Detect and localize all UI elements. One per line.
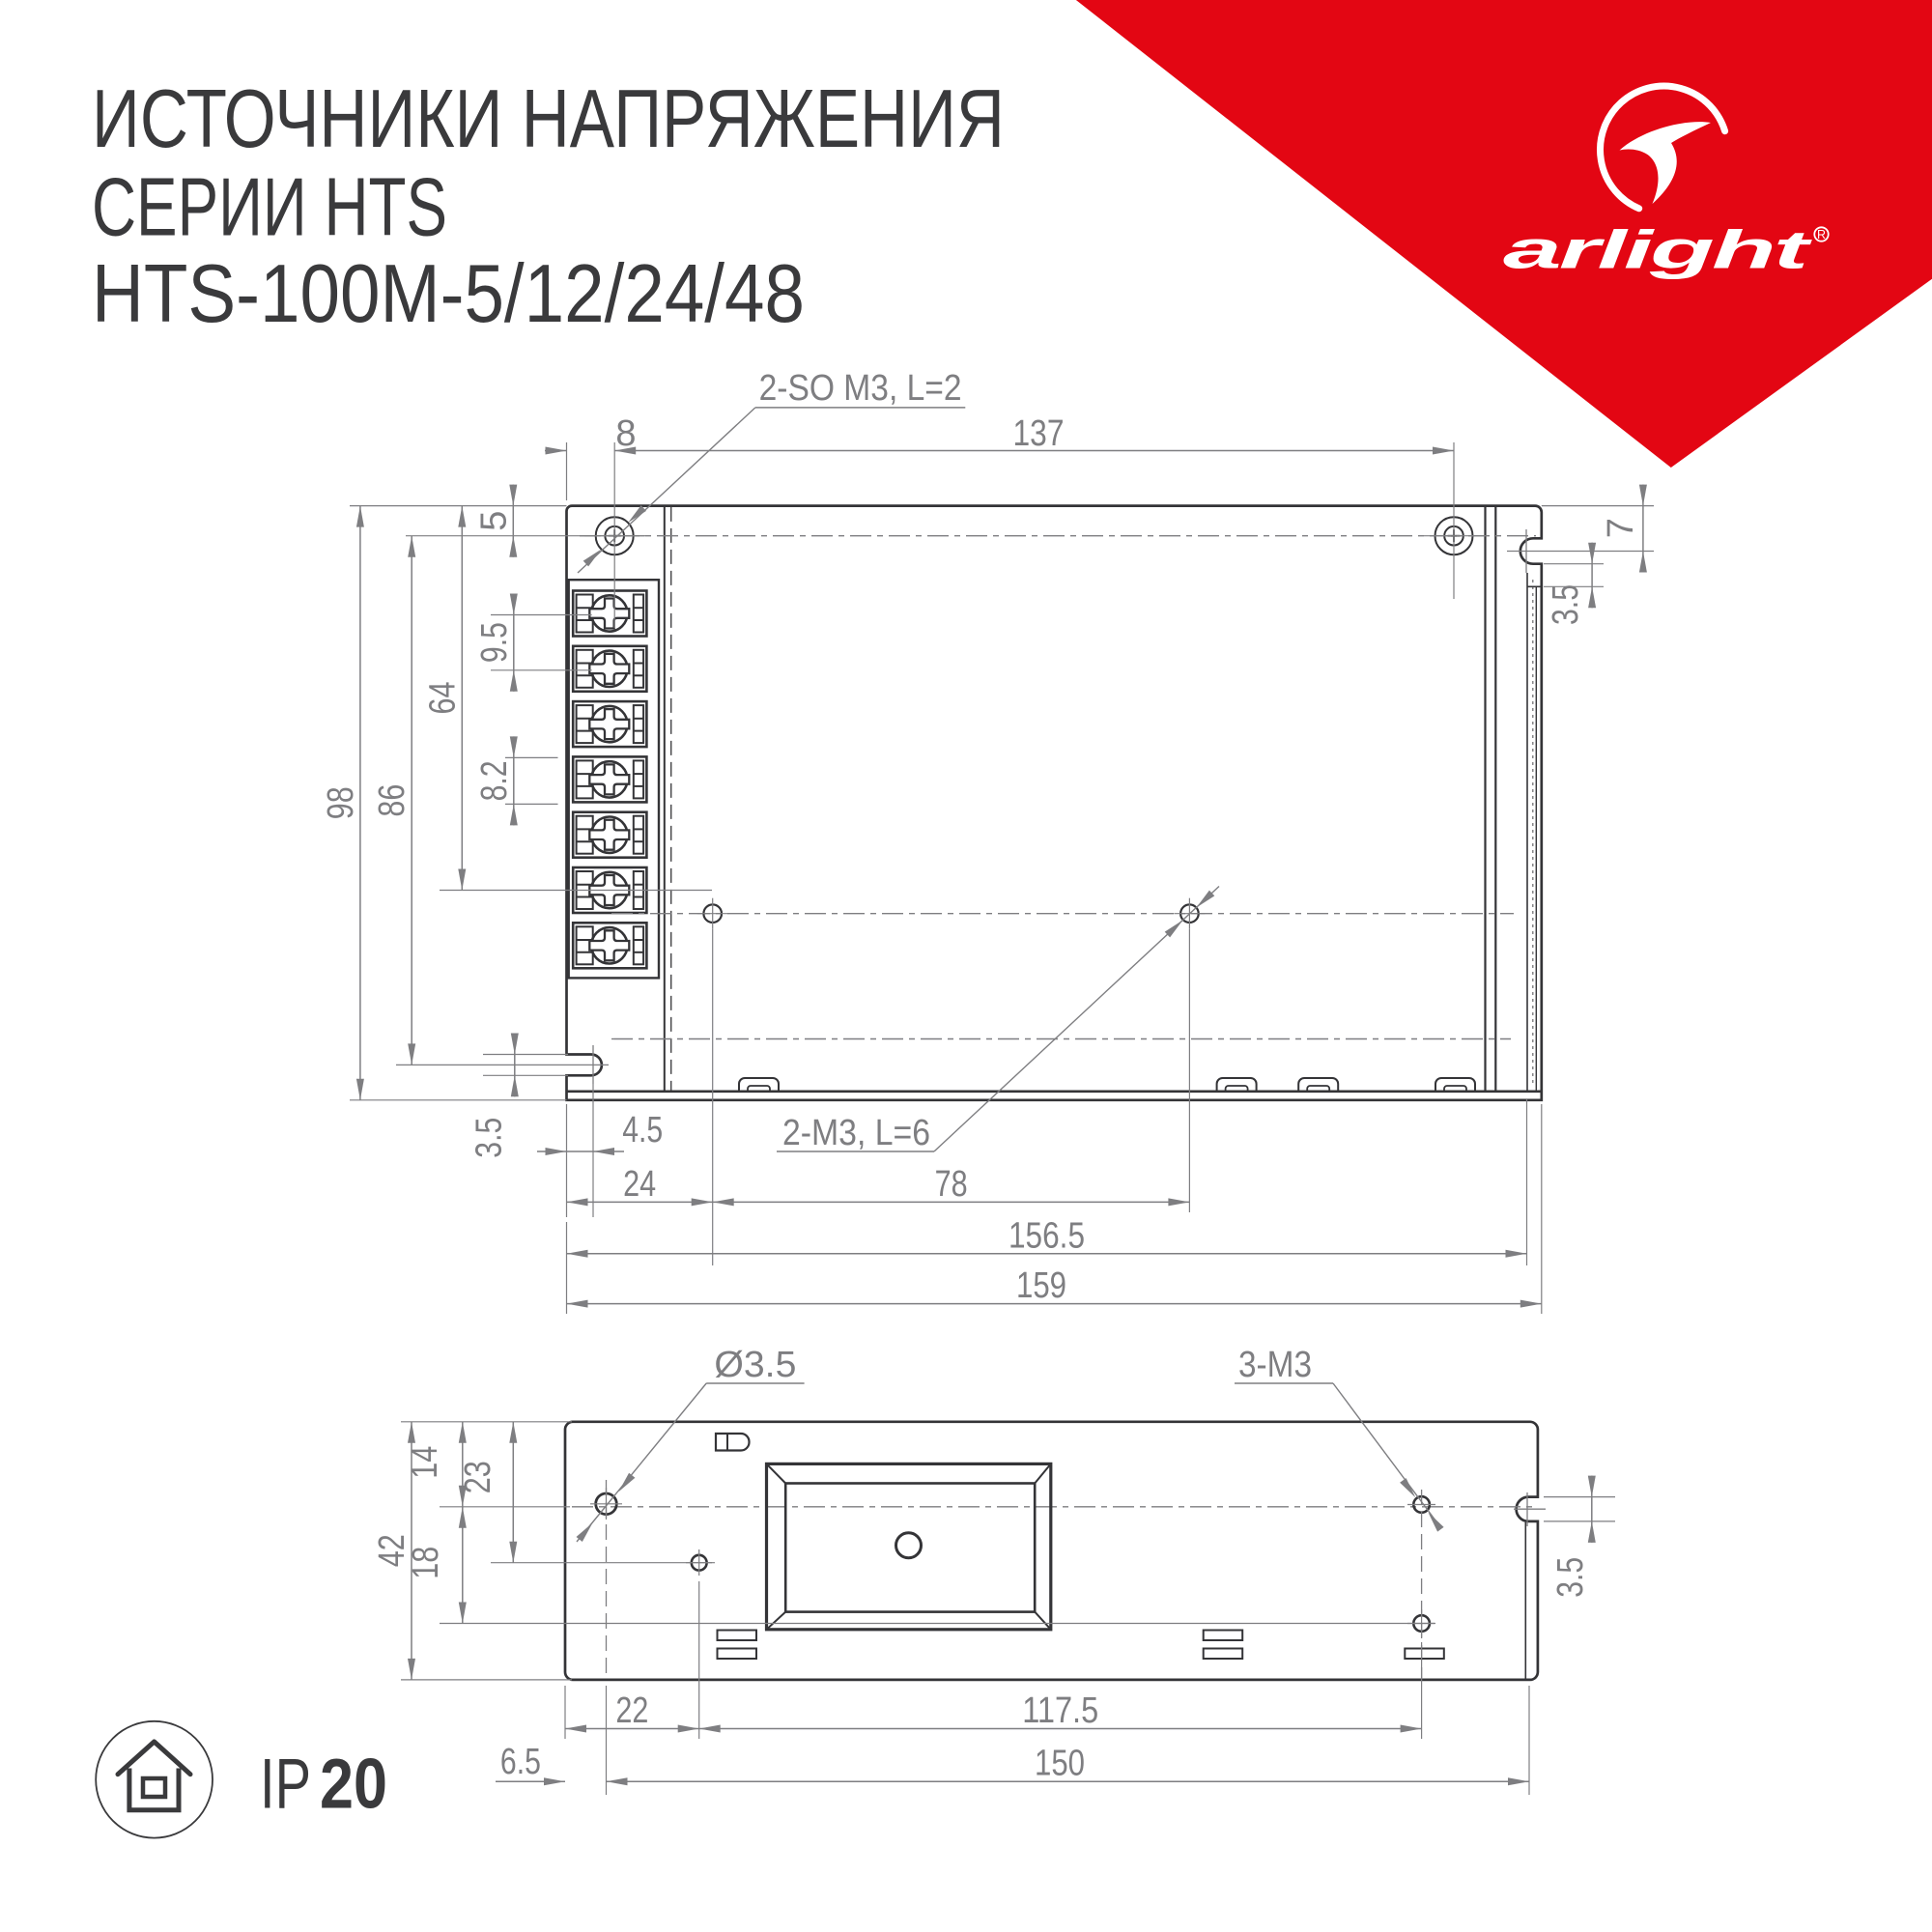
svg-text:5: 5	[473, 511, 514, 531]
svg-text:20: 20	[320, 1746, 387, 1824]
svg-text:8.2: 8.2	[474, 760, 515, 801]
svg-text:9.5: 9.5	[474, 622, 515, 663]
svg-text:150: 150	[1035, 1744, 1085, 1784]
svg-text:24: 24	[623, 1164, 656, 1205]
svg-text:4.5: 4.5	[622, 1110, 663, 1151]
svg-text:3.5: 3.5	[469, 1118, 509, 1158]
svg-text:64: 64	[422, 682, 463, 715]
svg-text:159: 159	[1016, 1265, 1066, 1306]
svg-text:arlight: arlight	[1503, 219, 1812, 280]
svg-text:8: 8	[615, 413, 636, 454]
svg-text:Ø3.5: Ø3.5	[714, 1345, 796, 1385]
svg-text:98: 98	[321, 786, 361, 819]
svg-text:22: 22	[615, 1690, 648, 1731]
svg-text:23: 23	[458, 1461, 498, 1493]
svg-text:7: 7	[1601, 518, 1641, 538]
svg-text:R: R	[1817, 228, 1826, 241]
svg-text:117.5: 117.5	[1022, 1690, 1098, 1731]
svg-text:3-M3: 3-M3	[1238, 1345, 1312, 1385]
svg-text:2-M3, L=6: 2-M3, L=6	[782, 1113, 930, 1153]
svg-text:14: 14	[405, 1446, 445, 1479]
svg-text:86: 86	[372, 784, 412, 817]
svg-text:2-SO M3, L=2: 2-SO M3, L=2	[759, 368, 962, 409]
svg-text:ИСТОЧНИКИ НАПРЯЖЕНИЯ: ИСТОЧНИКИ НАПРЯЖЕНИЯ	[92, 73, 1005, 165]
svg-text:18: 18	[406, 1547, 446, 1579]
svg-text:3.5: 3.5	[1546, 584, 1586, 625]
svg-text:156.5: 156.5	[1009, 1215, 1085, 1256]
svg-text:СЕРИИ HTS: СЕРИИ HTS	[92, 162, 447, 254]
svg-text:HTS-100M-5/12/24/48: HTS-100M-5/12/24/48	[92, 248, 805, 340]
svg-text:3.5: 3.5	[1550, 1557, 1591, 1598]
svg-text:IP: IP	[260, 1746, 311, 1824]
svg-text:137: 137	[1013, 413, 1065, 454]
svg-text:6.5: 6.5	[500, 1742, 541, 1782]
svg-text:78: 78	[935, 1164, 968, 1205]
